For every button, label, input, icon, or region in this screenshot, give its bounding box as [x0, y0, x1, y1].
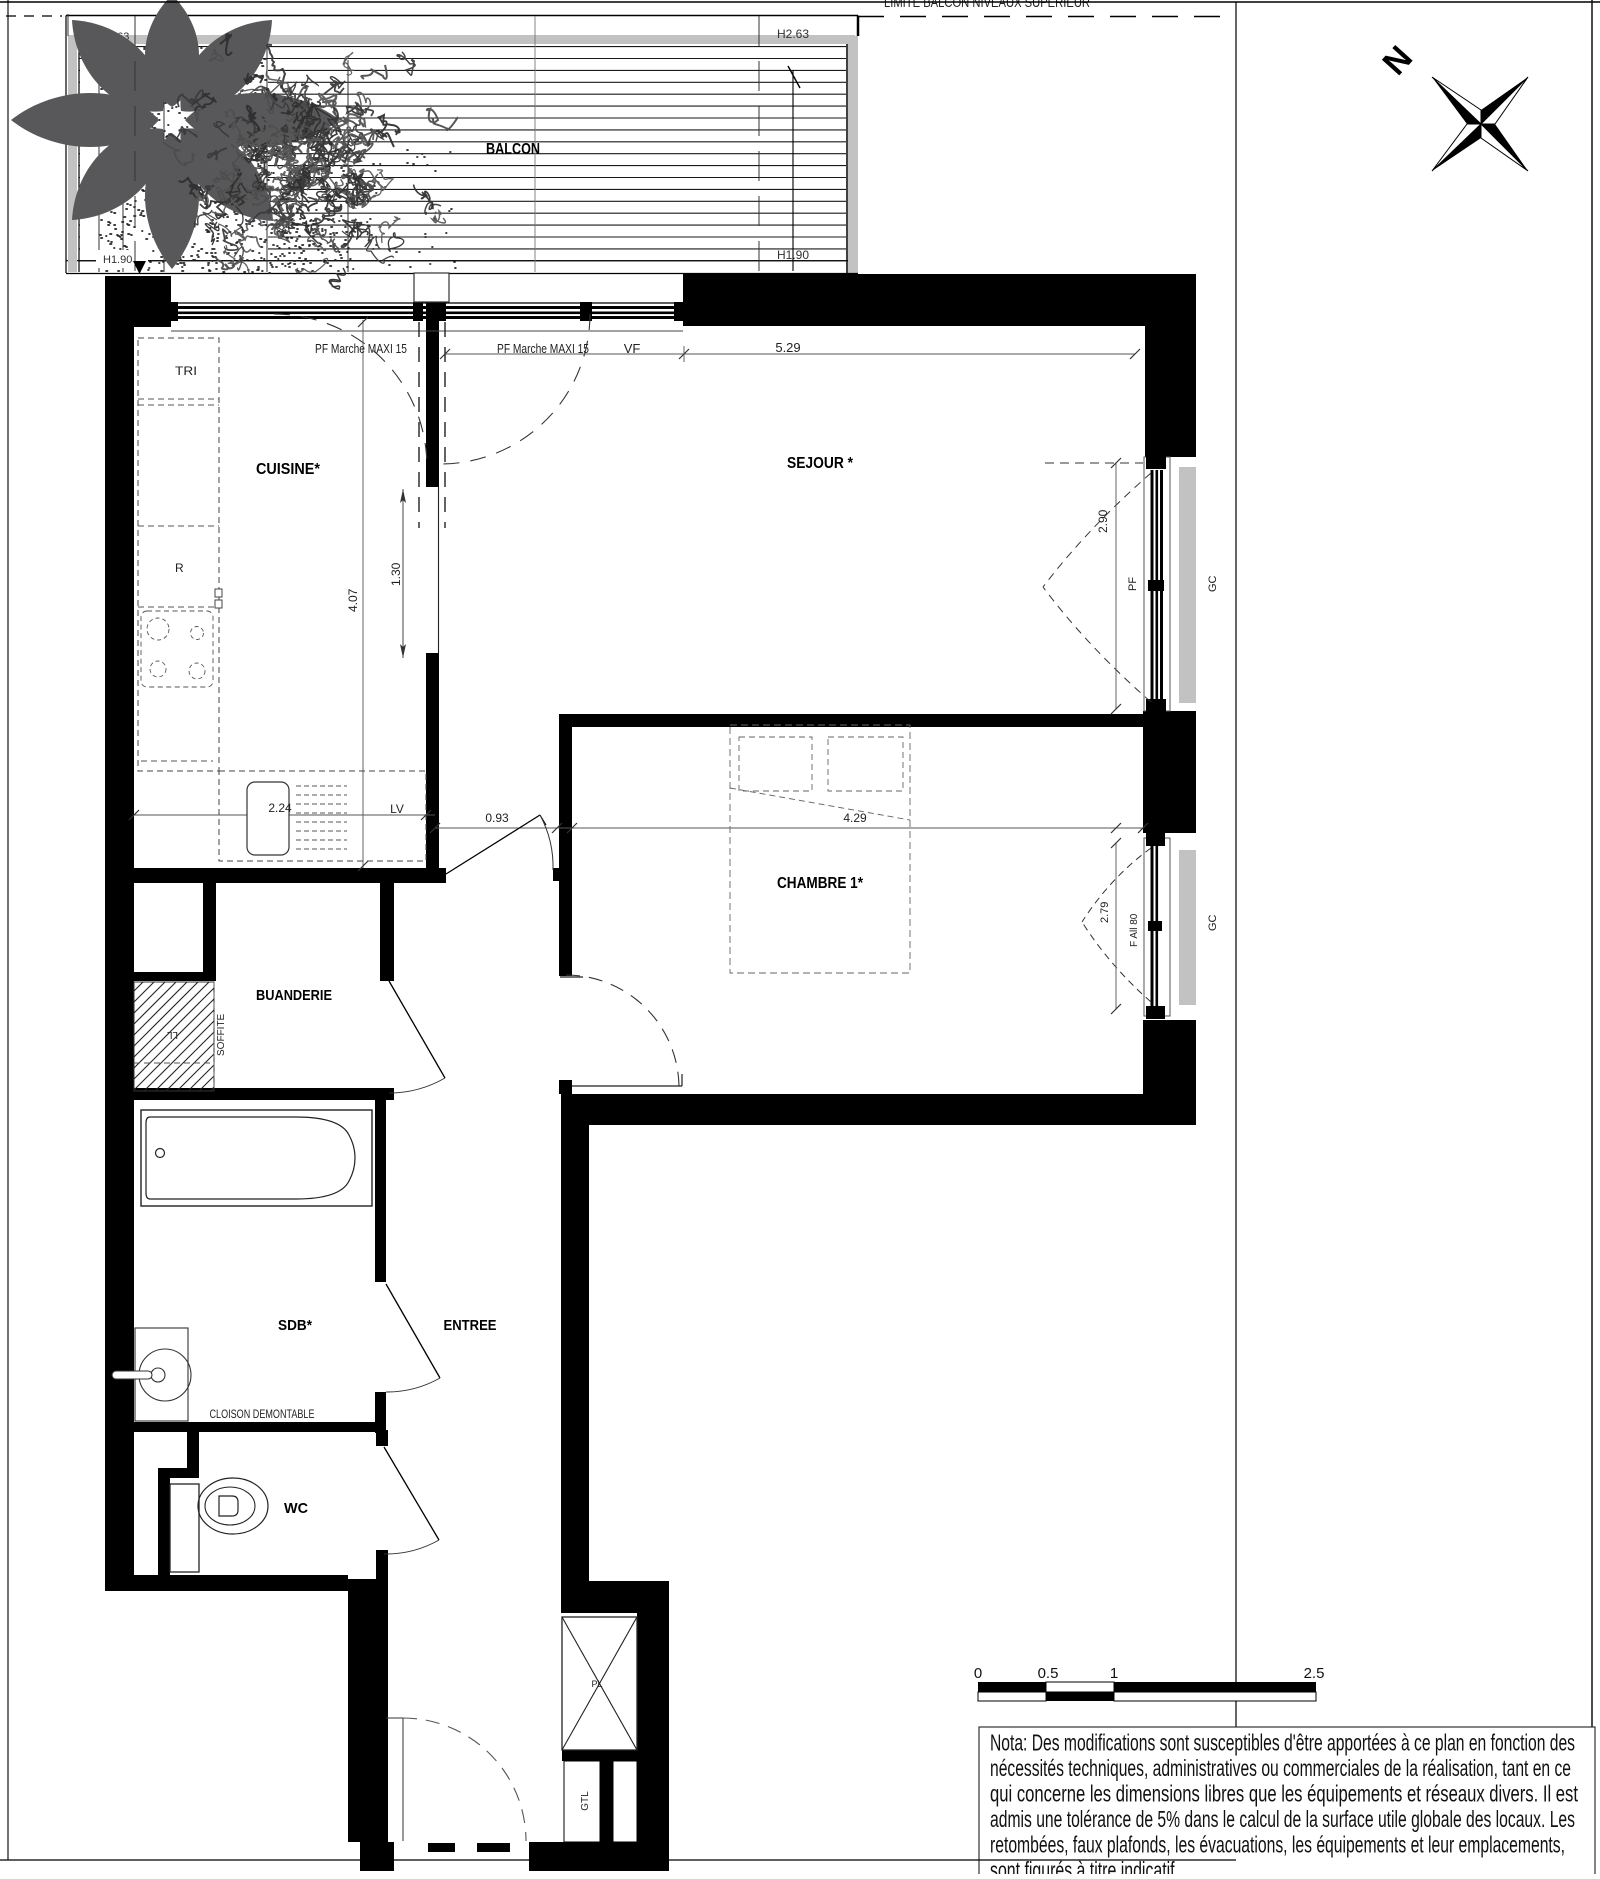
svg-text:4.07: 4.07: [346, 588, 360, 612]
svg-text:0.5: 0.5: [1038, 1665, 1059, 1682]
svg-text:SEJOUR *: SEJOUR *: [787, 455, 854, 472]
svg-text:H1.90: H1.90: [103, 254, 132, 266]
svg-text:LV: LV: [390, 802, 404, 816]
svg-text:GTL: GTL: [580, 1791, 591, 1811]
svg-text:SDB*: SDB*: [278, 1317, 312, 1334]
svg-text:WC: WC: [284, 1500, 308, 1517]
svg-text:1: 1: [1110, 1665, 1118, 1682]
svg-text:2.79: 2.79: [1099, 902, 1111, 923]
svg-text:F All 80: F All 80: [1129, 913, 1140, 947]
svg-text:qui concerne les dimensions l: qui concerne les dimensions libres que l…: [990, 1781, 1578, 1807]
svg-text:TRI: TRI: [175, 364, 197, 378]
svg-text:GC: GC: [1207, 914, 1219, 931]
svg-text:CHAMBRE 1*: CHAMBRE 1*: [777, 875, 864, 892]
svg-text:BUANDERIE: BUANDERIE: [256, 987, 332, 1004]
svg-text:2.90: 2.90: [1096, 509, 1110, 533]
svg-text:5.29: 5.29: [775, 340, 800, 355]
svg-text:VF: VF: [624, 341, 641, 356]
svg-text:LL: LL: [166, 1029, 178, 1040]
svg-text:CUISINE*: CUISINE*: [256, 461, 321, 478]
svg-text:PF Marche MAXI 15: PF Marche MAXI 15: [497, 341, 589, 356]
svg-text:0.93: 0.93: [485, 811, 509, 825]
svg-text:nécessités techniques, adminis: nécessités techniques, administratives o…: [990, 1755, 1571, 1781]
svg-text:0: 0: [974, 1665, 982, 1682]
svg-text:2.5: 2.5: [1304, 1665, 1325, 1682]
svg-text:ENTREE: ENTREE: [444, 1317, 497, 1334]
svg-text:1.30: 1.30: [389, 562, 403, 586]
svg-text:PF: PF: [1127, 577, 1139, 591]
svg-text:4.29: 4.29: [843, 811, 867, 825]
svg-text:R: R: [175, 561, 184, 575]
svg-text:admis une tolérance de 5% dans: admis une tolérance de 5% dans le calcul…: [990, 1806, 1575, 1832]
svg-text:2.24: 2.24: [268, 801, 292, 815]
svg-text:SOFFITE: SOFFITE: [216, 1013, 227, 1056]
svg-text:Nota: Des modifications sont s: Nota: Des modifications sont susceptible…: [990, 1730, 1575, 1756]
svg-text:BALCON: BALCON: [486, 141, 540, 158]
svg-text:H2.63: H2.63: [777, 27, 809, 41]
svg-text:retombées, faux plafonds, les: retombées, faux plafonds, les évacuation…: [990, 1832, 1565, 1858]
svg-text:PF Marche MAXI 15: PF Marche MAXI 15: [315, 341, 407, 356]
svg-text:CLOISON DEMONTABLE: CLOISON DEMONTABLE: [210, 1407, 315, 1421]
svg-text:GC: GC: [1207, 575, 1219, 592]
svg-text:PL: PL: [591, 1679, 602, 1689]
